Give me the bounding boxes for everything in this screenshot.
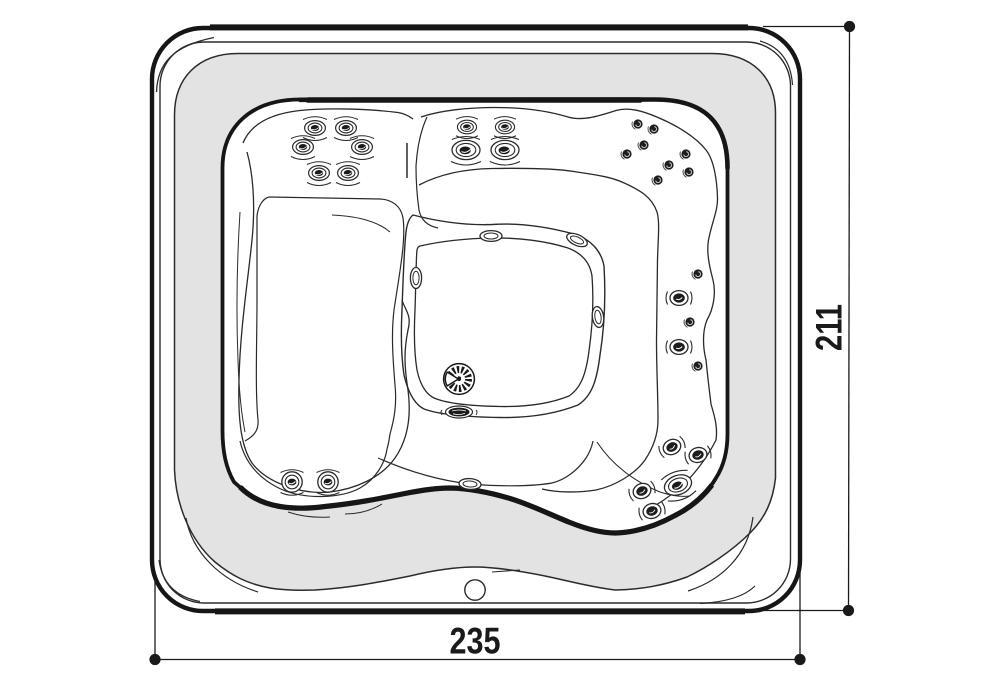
svg-text:211: 211 [809,304,850,351]
svg-text:235: 235 [450,621,501,662]
